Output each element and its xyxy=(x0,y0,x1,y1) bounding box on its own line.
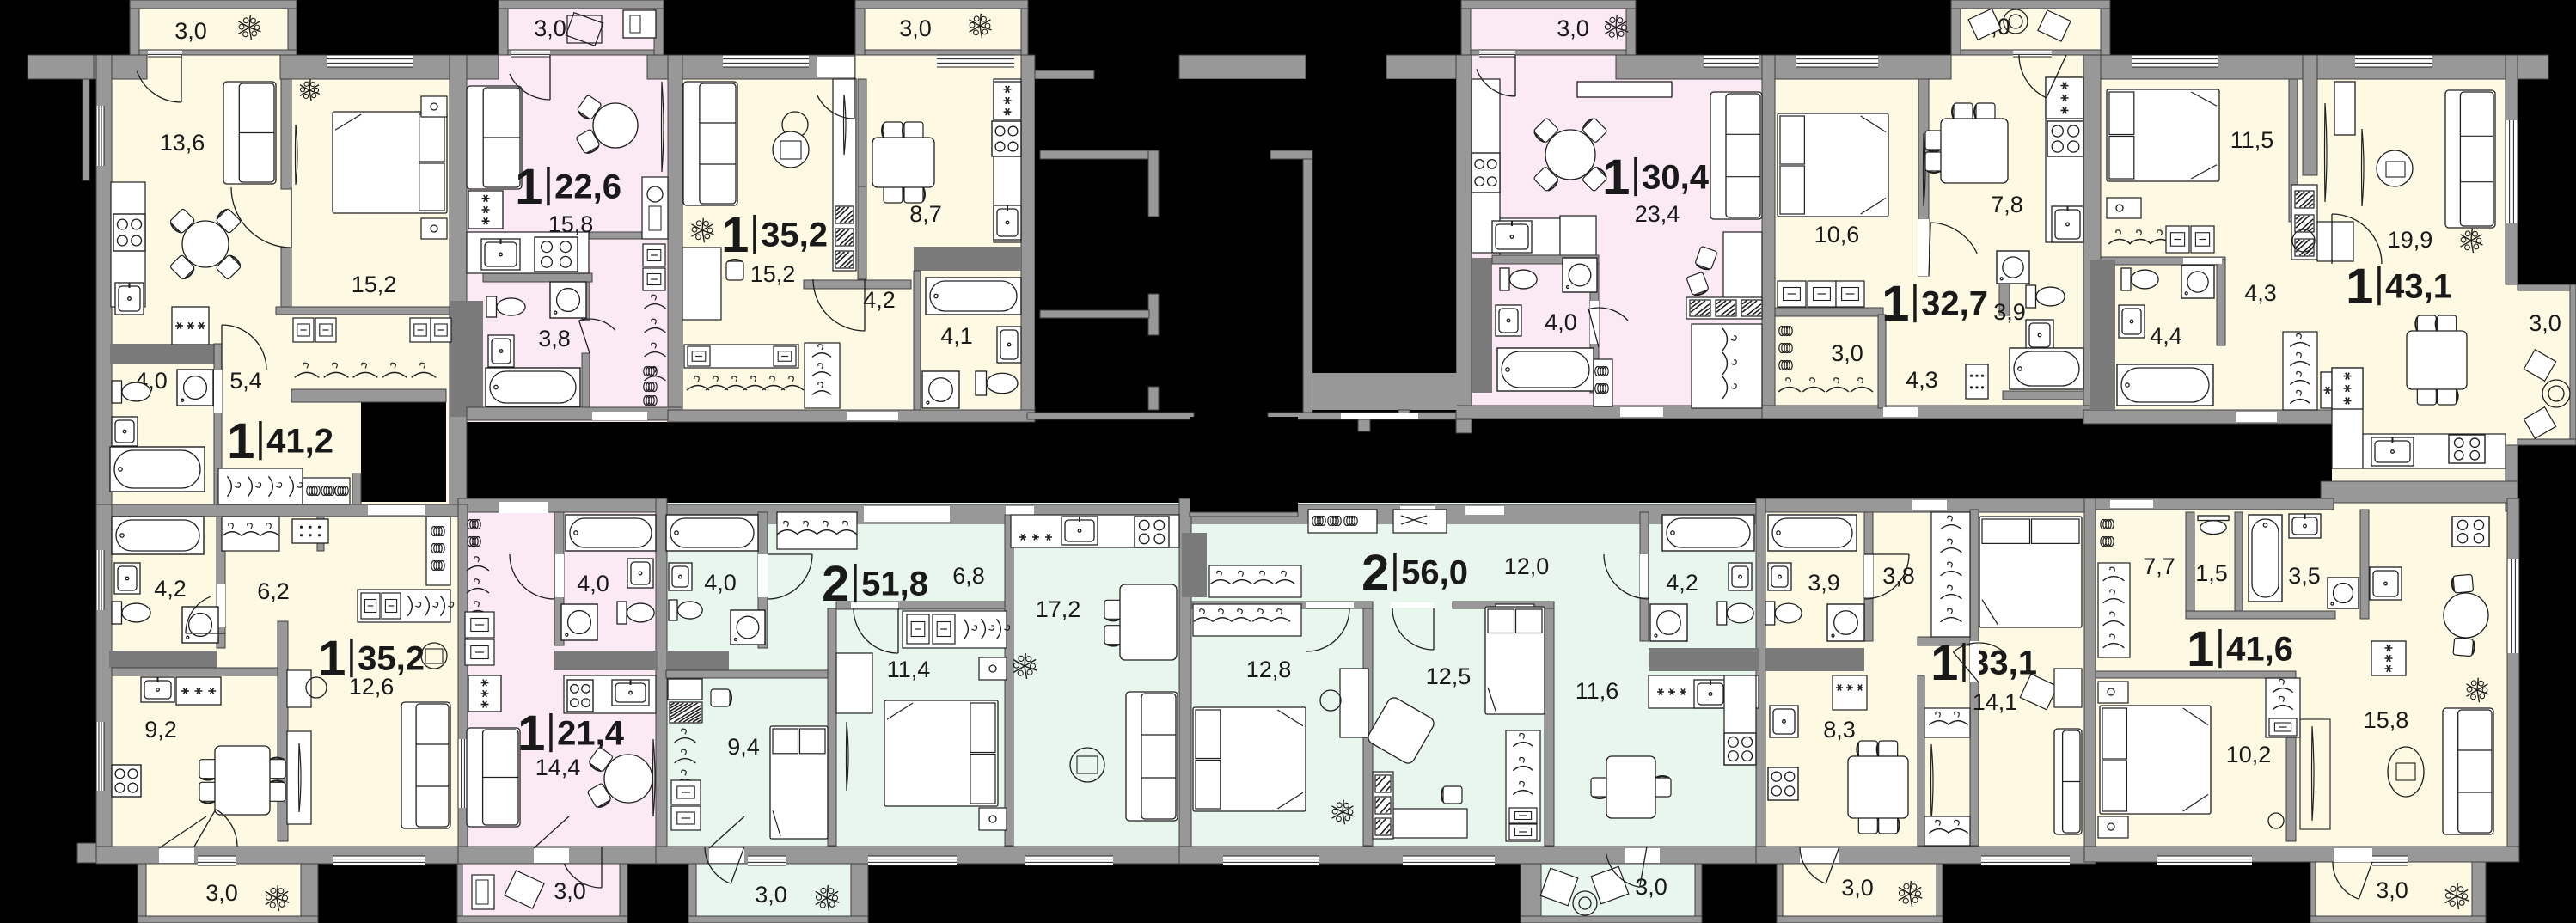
svg-text:17,2: 17,2 xyxy=(1036,596,1081,622)
svg-text:11,4: 11,4 xyxy=(887,657,931,682)
svg-text:3,0: 3,0 xyxy=(2376,877,2408,903)
svg-text:12,5: 12,5 xyxy=(1426,663,1472,689)
svg-text:3,0: 3,0 xyxy=(899,15,932,41)
svg-text:4,2: 4,2 xyxy=(863,287,896,313)
svg-text:14,1: 14,1 xyxy=(1973,689,2018,715)
svg-text:3,8: 3,8 xyxy=(538,326,571,351)
svg-text:3,0: 3,0 xyxy=(205,880,238,906)
svg-text:5,4: 5,4 xyxy=(229,368,262,394)
svg-text:4,2: 4,2 xyxy=(1666,570,1698,596)
svg-text:3,0: 3,0 xyxy=(174,18,207,44)
svg-text:4,0: 4,0 xyxy=(704,570,737,596)
svg-text:1: 1 xyxy=(227,413,254,469)
svg-text:2: 2 xyxy=(1361,545,1389,601)
svg-text:3,0: 3,0 xyxy=(755,882,787,908)
svg-text:15,2: 15,2 xyxy=(750,261,796,287)
svg-text:1: 1 xyxy=(515,159,542,215)
svg-text:7,8: 7,8 xyxy=(1991,192,2023,217)
svg-text:13,6: 13,6 xyxy=(160,130,205,156)
svg-text:15,2: 15,2 xyxy=(352,272,397,297)
svg-text:15,8: 15,8 xyxy=(548,211,594,237)
svg-text:35,2: 35,2 xyxy=(358,639,425,677)
svg-text:6,2: 6,2 xyxy=(257,578,290,604)
svg-text:9,2: 9,2 xyxy=(144,717,177,743)
svg-text:11,5: 11,5 xyxy=(2230,127,2274,153)
svg-text:3,0: 3,0 xyxy=(1557,15,1589,41)
svg-text:1: 1 xyxy=(2187,621,2214,677)
svg-text:56,0: 56,0 xyxy=(1401,553,1468,591)
svg-text:4,3: 4,3 xyxy=(1906,367,1938,393)
svg-text:33,1: 33,1 xyxy=(1970,644,2037,682)
svg-text:4,0: 4,0 xyxy=(1545,309,1577,335)
svg-text:3,0: 3,0 xyxy=(2529,310,2561,336)
svg-text:41,6: 41,6 xyxy=(2226,630,2293,668)
svg-text:1,5: 1,5 xyxy=(2195,560,2228,586)
svg-text:8,7: 8,7 xyxy=(909,201,942,227)
svg-text:6,8: 6,8 xyxy=(952,563,985,589)
svg-text:8,3: 8,3 xyxy=(1823,717,1856,743)
svg-text:1: 1 xyxy=(318,631,346,687)
svg-text:1: 1 xyxy=(1882,276,1909,332)
svg-text:3,0: 3,0 xyxy=(534,15,566,41)
svg-text:3,0: 3,0 xyxy=(1831,340,1863,366)
svg-text:4,0: 4,0 xyxy=(577,571,609,596)
svg-text:15,8: 15,8 xyxy=(2364,707,2409,733)
svg-text:4,4: 4,4 xyxy=(2150,323,2182,349)
svg-text:12,6: 12,6 xyxy=(349,674,395,700)
svg-text:23,4: 23,4 xyxy=(1635,201,1680,227)
svg-text:3,8: 3,8 xyxy=(1882,563,1915,589)
svg-text:41,2: 41,2 xyxy=(266,422,333,460)
svg-text:1: 1 xyxy=(1602,150,1630,205)
svg-text:1: 1 xyxy=(517,706,545,761)
svg-text:51,8: 51,8 xyxy=(861,565,928,602)
svg-text:4,2: 4,2 xyxy=(154,576,187,602)
svg-text:3,5: 3,5 xyxy=(2288,563,2321,589)
svg-text:4,3: 4,3 xyxy=(2244,280,2277,306)
svg-text:12,8: 12,8 xyxy=(1246,657,1292,682)
svg-text:43,1: 43,1 xyxy=(2385,267,2452,305)
svg-text:1: 1 xyxy=(1930,635,1958,691)
svg-text:35,2: 35,2 xyxy=(761,216,828,254)
svg-text:3,9: 3,9 xyxy=(1808,570,1840,596)
svg-text:7,7: 7,7 xyxy=(2143,553,2175,579)
svg-text:1: 1 xyxy=(721,207,749,263)
svg-text:3,0: 3,0 xyxy=(1841,875,1874,901)
svg-text:4,1: 4,1 xyxy=(940,323,973,349)
svg-text:14,4: 14,4 xyxy=(535,755,581,780)
svg-text:30,4: 30,4 xyxy=(1642,158,1710,196)
svg-text:19,9: 19,9 xyxy=(2388,227,2433,253)
svg-text:21,4: 21,4 xyxy=(557,714,625,752)
svg-text:32,7: 32,7 xyxy=(1921,284,1988,322)
svg-text:10,2: 10,2 xyxy=(2226,742,2272,767)
svg-text:10,6: 10,6 xyxy=(1814,222,1860,248)
svg-text:3,9: 3,9 xyxy=(1993,299,2026,325)
svg-text:1: 1 xyxy=(2346,259,2373,315)
svg-text:22,6: 22,6 xyxy=(554,168,621,205)
svg-text:12,0: 12,0 xyxy=(1504,553,1550,579)
svg-text:9,4: 9,4 xyxy=(727,734,760,760)
svg-text:2: 2 xyxy=(822,556,849,612)
svg-text:11,6: 11,6 xyxy=(1576,678,1619,704)
